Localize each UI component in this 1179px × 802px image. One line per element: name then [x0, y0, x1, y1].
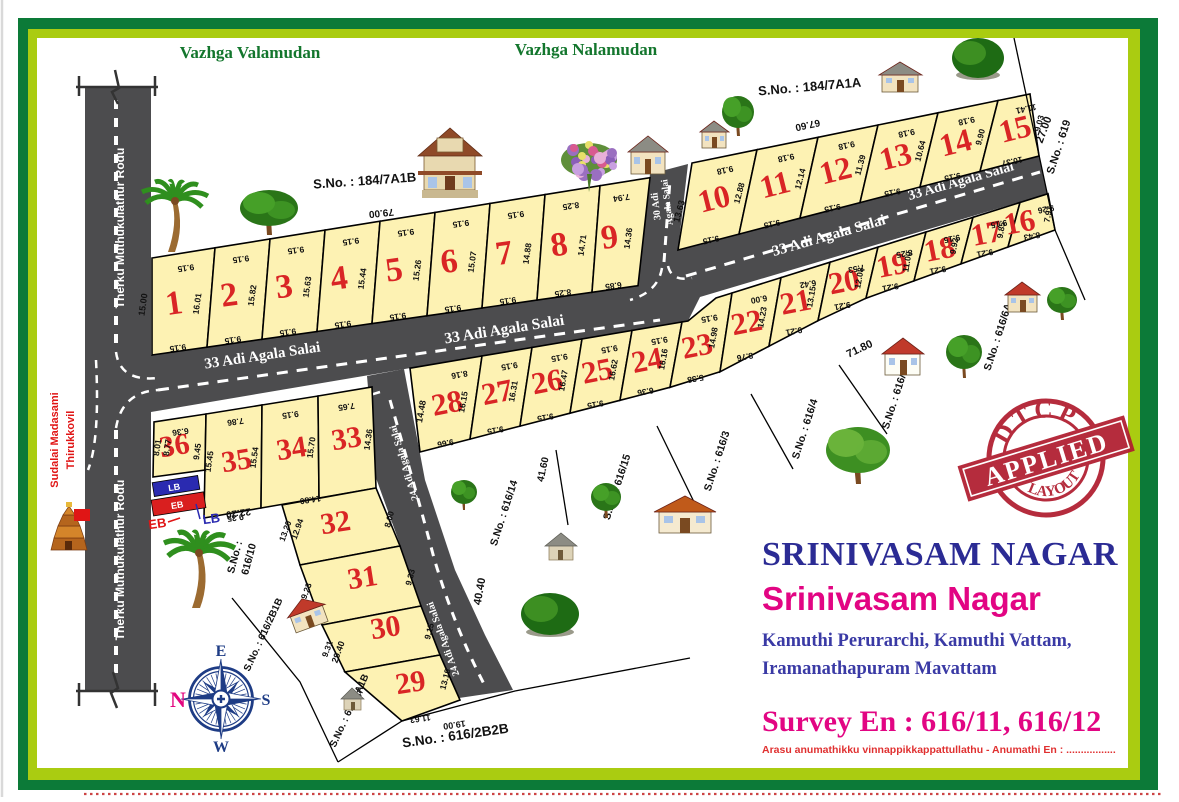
svg-text:S: S — [262, 692, 271, 709]
svg-text:34: 34 — [274, 430, 309, 467]
svg-text:EB: EB — [170, 499, 184, 511]
svg-text:SRINIVASAM NAGAR: SRINIVASAM NAGAR — [762, 536, 1118, 573]
svg-text:Vazhga Nalamudan: Vazhga Nalamudan — [515, 40, 658, 59]
svg-text:31: 31 — [345, 559, 380, 596]
svg-text:C: C — [1034, 396, 1053, 424]
svg-text:LB: LB — [202, 510, 221, 527]
svg-text:W: W — [213, 739, 229, 756]
svg-text:33: 33 — [329, 420, 364, 457]
svg-text:E: E — [216, 643, 227, 660]
svg-text:30: 30 — [368, 609, 403, 646]
svg-text:Arasu anumathikku vinnappikkap: Arasu anumathikku vinnappikkappattullath… — [762, 744, 1116, 756]
svg-text:Srinivasam Nagar: Srinivasam Nagar — [762, 580, 1041, 617]
svg-text:LB: LB — [167, 481, 181, 493]
svg-text:N: N — [170, 687, 186, 712]
svg-text:Vazhga Valamudan: Vazhga Valamudan — [180, 43, 321, 62]
svg-text:Survey En : 616/11, 616/12: Survey En : 616/11, 616/12 — [762, 705, 1101, 738]
svg-text:EB: EB — [147, 515, 167, 532]
svg-text:Kamuthi Perurarchi, Kamuthi Va: Kamuthi Perurarchi, Kamuthi Vattam, — [762, 631, 1072, 651]
svg-text:29: 29 — [393, 664, 428, 701]
svg-text:Therku Muthukulathur Rodu: Therku Muthukulathur Rodu — [113, 480, 127, 641]
svg-text:Therku Muthukulathur Rodu: Therku Muthukulathur Rodu — [113, 148, 127, 309]
svg-text:Thirukkovil: Thirukkovil — [65, 411, 77, 470]
svg-text:32: 32 — [318, 504, 353, 541]
svg-text:Sudalai Madasami: Sudalai Madasami — [49, 392, 61, 487]
svg-text:Iramanathapuram Mavattam: Iramanathapuram Mavattam — [762, 659, 997, 679]
